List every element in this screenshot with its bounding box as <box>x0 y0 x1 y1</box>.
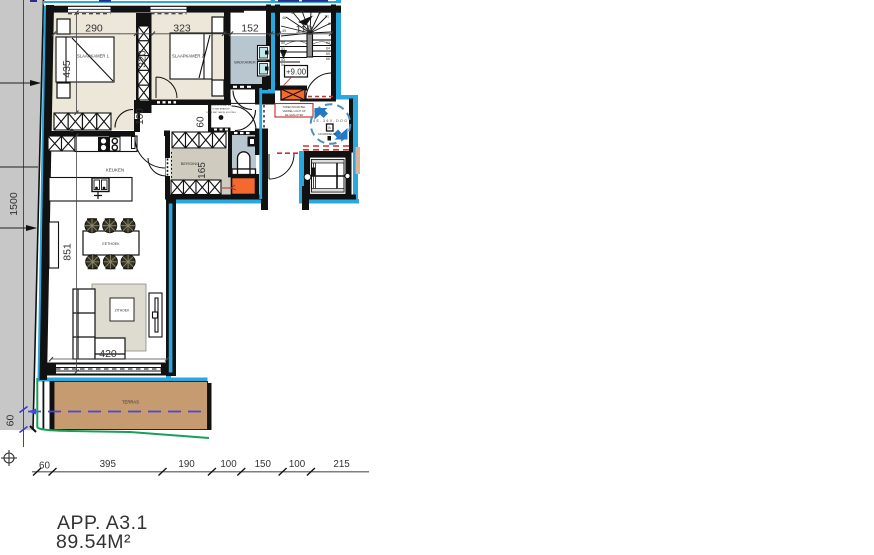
svg-text:395: 395 <box>100 459 117 470</box>
svg-text:48: 48 <box>282 16 286 20</box>
svg-text:SLAAPKAMER 1: SLAAPKAMER 1 <box>77 54 110 59</box>
svg-text:VERDEL.LICHT OP: VERDEL.LICHT OP <box>282 109 305 113</box>
svg-text:150: 150 <box>255 459 272 470</box>
svg-text:DE-GESLOTEN: DE-GESLOTEN <box>285 113 304 117</box>
svg-text:ZITHOEK: ZITHOEK <box>115 309 130 313</box>
svg-text:BADKAMER: BADKAMER <box>234 61 256 65</box>
svg-text:ZELFSLUITEND EN: ZELFSLUITEND EN <box>211 105 231 107</box>
svg-text:61: 61 <box>325 15 329 19</box>
svg-text:320: 320 <box>137 50 149 68</box>
svg-text:46: 46 <box>300 10 304 14</box>
svg-text:60: 60 <box>328 22 332 26</box>
svg-text:62: 62 <box>318 11 322 15</box>
svg-text:1500: 1500 <box>8 192 20 216</box>
svg-text:47: 47 <box>291 11 295 15</box>
svg-text:52: 52 <box>281 53 285 57</box>
svg-text:30 MIN BRANDW.: 30 MIN BRANDW. <box>212 108 230 111</box>
svg-text:65: 65 <box>326 52 330 56</box>
svg-text:290: 290 <box>85 23 103 35</box>
svg-text:100: 100 <box>289 459 306 470</box>
svg-text:DEUR MET VASTE SLUITING: DEUR MET VASTE SLUITING <box>206 111 236 114</box>
svg-text:51: 51 <box>281 47 285 51</box>
svg-text:63: 63 <box>326 41 330 45</box>
svg-text:SLAAPKAMER 2: SLAAPKAMER 2 <box>172 54 205 59</box>
svg-text:420: 420 <box>99 348 117 360</box>
svg-text:323: 323 <box>173 23 191 35</box>
svg-text:60: 60 <box>196 116 207 128</box>
svg-text:190: 190 <box>178 459 195 470</box>
svg-text:152: 152 <box>241 23 259 35</box>
svg-text:EETHOEK: EETHOEK <box>102 242 120 246</box>
svg-text:+9.00: +9.00 <box>286 68 307 77</box>
svg-text:TERRAS: TERRAS <box>122 400 139 405</box>
svg-text:165: 165 <box>197 162 208 179</box>
svg-text:66: 66 <box>326 57 330 61</box>
svg-text:60: 60 <box>39 461 50 472</box>
svg-text:4E-360-DOG: 4E-360-DOG <box>313 119 347 123</box>
svg-text:49: 49 <box>282 29 286 33</box>
svg-text:53: 53 <box>281 58 285 62</box>
svg-text:89.54M²: 89.54M² <box>56 531 131 550</box>
svg-text:64: 64 <box>326 47 330 51</box>
svg-text:851: 851 <box>62 243 74 261</box>
svg-text:215: 215 <box>333 459 350 470</box>
svg-text:50: 50 <box>281 41 285 45</box>
svg-text:NOODDEUR: NOODDEUR <box>318 132 336 136</box>
svg-text:100: 100 <box>220 459 237 470</box>
svg-text:TOREN NOOD BEL: TOREN NOOD BEL <box>282 105 306 109</box>
svg-text:435: 435 <box>61 60 73 78</box>
svg-text:KEUKEN: KEUKEN <box>106 168 125 173</box>
svg-text:100: 100 <box>135 108 146 125</box>
svg-text:60: 60 <box>5 415 17 427</box>
